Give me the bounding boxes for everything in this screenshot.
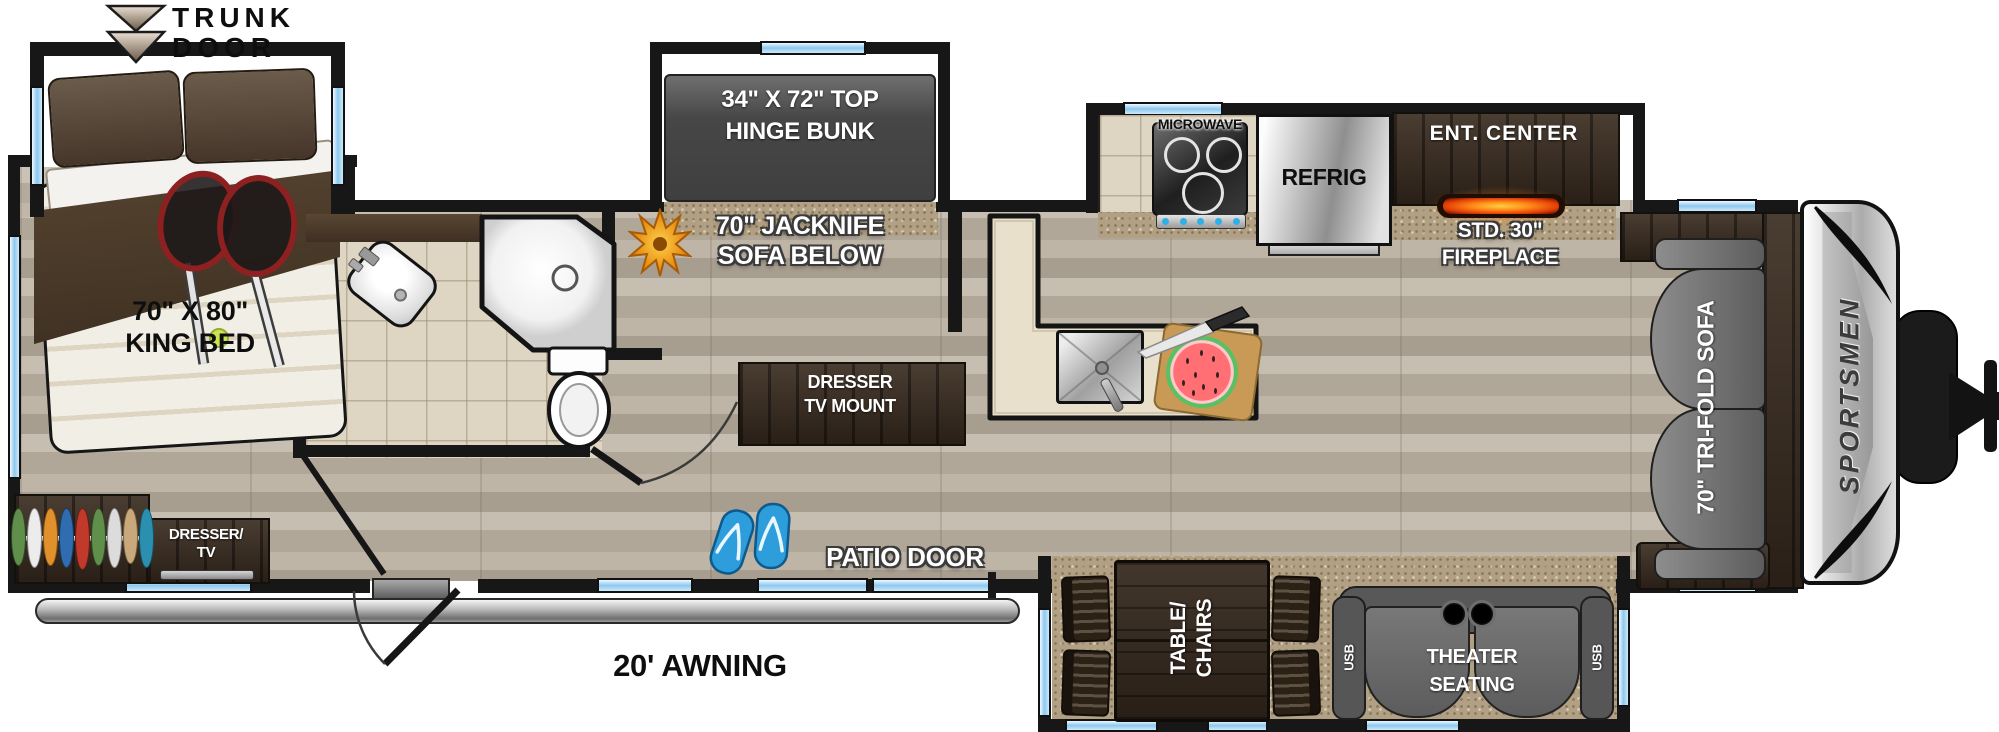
rear-wall-window	[8, 235, 21, 479]
cupholder	[1468, 600, 1496, 628]
king-bed-label-line1: 70" X 80"	[60, 296, 320, 327]
dresser-tv-label-line2: TV	[146, 544, 266, 561]
sink-drain	[1095, 361, 1109, 375]
bunk-slide-left-wall	[650, 42, 662, 212]
burner	[1206, 137, 1242, 173]
bunk-slide-window	[760, 41, 866, 55]
wall-bunkroom-right	[948, 212, 962, 332]
awning-rail	[35, 598, 1020, 624]
entry-step	[372, 578, 450, 600]
fireplace-label-line1: STD. 30"	[1400, 219, 1600, 243]
dinette-slide-window-bottom	[1365, 719, 1460, 732]
patio-door-label: PATIO DOOR	[790, 542, 1020, 573]
dresser-tv-mount-label-line1: DRESSER	[738, 372, 962, 393]
dinette-slide-window-right	[1617, 608, 1630, 707]
cupholder	[1440, 600, 1468, 628]
fireplace-label-line2: FIREPLACE	[1400, 246, 1600, 270]
wall-step-kitchen-left	[1086, 103, 1098, 213]
jackknife-sofa-label-line2: SOFA BELOW	[670, 242, 930, 271]
burner	[1182, 172, 1224, 214]
wall-top-bath	[350, 200, 664, 212]
usb-label-left: USB	[1342, 628, 1357, 688]
toilet	[543, 346, 615, 452]
trunk-door-label-line2: DOOR	[172, 32, 276, 64]
floorplan: TRUNK DOOR 70" X 80" KING BED 34" X 72" …	[0, 0, 1999, 732]
burner	[1164, 137, 1200, 173]
awning-label: 20' AWNING	[520, 648, 880, 684]
ent-center-label: ENT. CENTER	[1392, 122, 1616, 146]
dining-chair	[1271, 575, 1321, 643]
brand-logo: SPORTSMEN	[1835, 236, 1866, 556]
dresser-tv-mount-label-line2: TV MOUNT	[738, 396, 962, 417]
tri-fold-sofa-label: 70" TRI-FOLD SOFA	[1693, 248, 1720, 568]
table-chairs-label: TABLE/ CHAIRS	[1166, 553, 1218, 723]
wardrobe	[14, 494, 150, 584]
dresser-tv-label-line1: DRESSER/	[146, 526, 266, 543]
shower	[477, 212, 619, 356]
tv-icon	[160, 570, 254, 580]
theater-seating-label-line2: SEATING	[1372, 674, 1572, 697]
hitch-icon	[1940, 350, 1999, 460]
bed-slide-window-left	[30, 86, 44, 186]
faucet-handle	[348, 257, 365, 273]
theater-seating-label-line1: THEATER	[1372, 646, 1572, 669]
table-chairs-line2: CHAIRS	[1192, 553, 1218, 723]
patio-door-frame	[988, 572, 996, 600]
hanging-clothes-icon	[11, 508, 154, 570]
refrigerator-label: REFRIG	[1256, 164, 1392, 191]
cooktop	[1152, 122, 1248, 216]
bottom-window-hall	[597, 578, 693, 593]
king-bed-label-line2: KING BED	[60, 328, 320, 359]
trunk-door-label-line1: TRUNK	[172, 2, 295, 34]
bed-slide-window-right	[331, 86, 345, 186]
dining-chair	[1061, 649, 1111, 717]
pillow	[47, 70, 185, 169]
bath-counter	[306, 214, 482, 242]
table-chairs-line1: TABLE/	[1166, 553, 1192, 723]
front-cabinet-side	[1762, 212, 1804, 589]
patio-door-glass-right	[872, 578, 993, 593]
king-bed-slideout	[32, 58, 344, 450]
flip-flops-icon	[706, 498, 802, 588]
front-top-window	[1677, 199, 1757, 213]
bunk-label-line1: 34" X 72" TOP	[670, 86, 930, 114]
kitchen-window	[1123, 102, 1223, 116]
fireplace-flame	[1443, 198, 1559, 214]
sink-drain	[391, 286, 409, 304]
usb-label-right: USB	[1590, 628, 1605, 688]
bunk-label-line2: HINGE BUNK	[670, 118, 930, 146]
pillow	[182, 68, 317, 165]
dinette-slide-window-left	[1038, 608, 1051, 717]
dining-chair	[1061, 575, 1111, 643]
jackknife-sofa-label-line1: 70" JACKNIFE	[670, 212, 930, 241]
microwave-label: MICROWAVE	[1130, 116, 1270, 132]
wall-step-kitchen-right	[1633, 103, 1645, 213]
knife-icon	[1128, 300, 1268, 370]
trunk-door-arrow-icon	[104, 4, 168, 66]
dining-chair	[1271, 649, 1321, 717]
fireplace	[1437, 194, 1565, 218]
bunk-slide-right-wall	[938, 42, 950, 212]
